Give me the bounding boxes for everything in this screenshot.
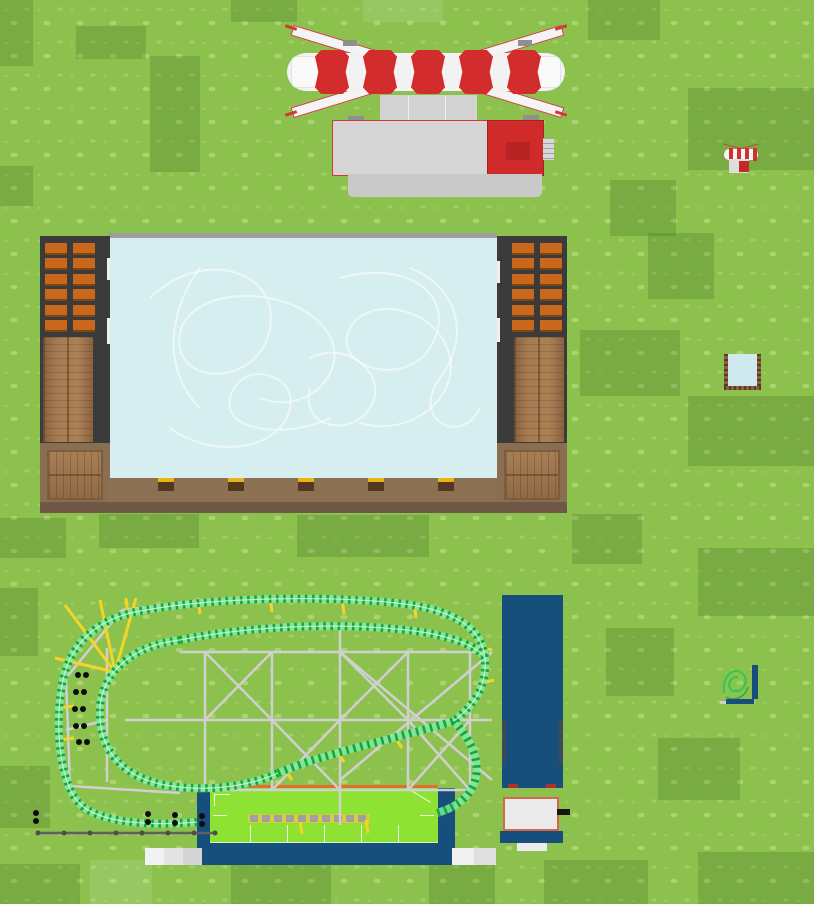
coaster-thumbnail[interactable]: [720, 661, 764, 707]
grass-patch: [150, 56, 200, 172]
grass-patch: [658, 738, 740, 800]
ride-platform: [332, 120, 489, 176]
building-foot: [508, 784, 518, 788]
grass-patch: [231, 0, 297, 22]
ride-pod: [459, 50, 493, 94]
thumb-frame: [724, 386, 761, 390]
bench: [158, 478, 174, 491]
grass-patch: [297, 515, 429, 557]
ride-gondola-arm: [287, 53, 565, 91]
thumb-pod: [753, 148, 757, 161]
grass-patch: [610, 180, 676, 236]
thumb-frame: [757, 354, 761, 386]
building-trim: [559, 720, 563, 765]
thumb-station-wall: [752, 665, 758, 699]
grass-patch: [544, 860, 648, 904]
grass-patch: [698, 852, 814, 904]
hut-roof-panel: [506, 142, 530, 160]
window-column: [45, 243, 67, 336]
grass-patch: [688, 396, 814, 466]
bench: [438, 478, 454, 491]
thumb-frame: [724, 354, 728, 386]
kiosk-step: [517, 843, 547, 851]
skate-marks: [110, 238, 497, 478]
window-column: [73, 243, 95, 336]
thumb-ice: [727, 354, 758, 386]
rink-left-roof: [43, 337, 93, 442]
ride-entrance-hut[interactable]: [487, 120, 544, 176]
building-foot: [546, 784, 556, 788]
ice-rink[interactable]: [40, 233, 567, 513]
rink-right-roof: [514, 337, 564, 442]
grass-patch: [580, 330, 680, 396]
bench: [228, 478, 244, 491]
footpath[interactable]: [452, 848, 496, 865]
maintenance-ladder: [543, 138, 554, 160]
roof-vent: [343, 40, 357, 46]
ride-pod: [363, 50, 397, 94]
entry-deck: [47, 450, 103, 500]
bench: [368, 478, 384, 491]
blue-building[interactable]: [502, 595, 563, 788]
building-trim: [502, 720, 506, 765]
kiosk-sign: [557, 809, 570, 815]
roller-coaster[interactable]: Green roller coaster: [30, 590, 510, 880]
seat-cluster: [291, 56, 319, 88]
ride-pod: [411, 50, 445, 94]
grass-patch: [0, 166, 33, 206]
ride-pod: [507, 50, 541, 94]
queue-fence: [36, 831, 218, 836]
grass-patch: [0, 518, 66, 558]
grass-patch: [588, 0, 660, 40]
roof-vent: [518, 40, 532, 46]
window-column: [540, 243, 562, 336]
ride-apron: [348, 174, 542, 197]
grass-patch: [648, 233, 714, 299]
ice-rink-thumbnail[interactable]: [724, 351, 761, 390]
ride-pod: [315, 50, 349, 94]
grass-patch: [572, 514, 642, 564]
kiosk-awning: [500, 831, 563, 843]
thumb-hut: [739, 161, 749, 172]
park-map: Green roller coaster: [0, 0, 814, 904]
rink-right-entry: [497, 443, 567, 505]
rink-base: [40, 502, 567, 513]
grass-patch: [606, 628, 674, 696]
rink-left-entry: [40, 443, 110, 505]
grass-patch: [76, 26, 146, 59]
flat-ride-thumbnail[interactable]: [722, 142, 760, 178]
thumb-track: [720, 663, 752, 701]
thumb-station-base: [726, 699, 754, 704]
grass-patch: [698, 548, 814, 616]
kiosk-roof: [503, 797, 559, 831]
flat-ride[interactable]: [285, 20, 570, 200]
thumb-path: [720, 701, 726, 704]
kiosk[interactable]: [500, 795, 570, 855]
bench: [298, 478, 314, 491]
entry-deck: [504, 450, 560, 500]
grass-patch: [363, 0, 443, 22]
grass-patch: [0, 0, 33, 66]
window-column: [512, 243, 534, 336]
grass-patch: [99, 514, 199, 548]
footpath[interactable]: [145, 848, 202, 865]
ice-surface: [110, 238, 497, 478]
